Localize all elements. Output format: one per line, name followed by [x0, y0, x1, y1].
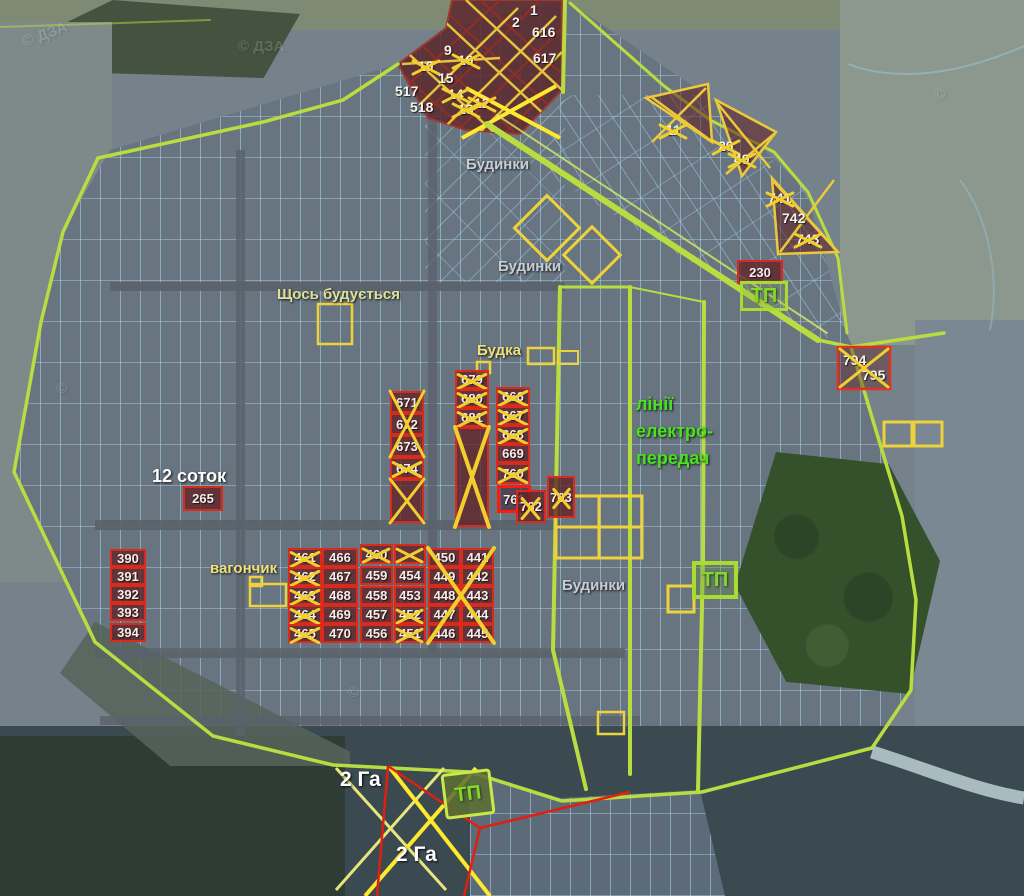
map-label: передач: [636, 448, 709, 469]
plot-marker: 616: [532, 24, 555, 40]
plot-marker: 760: [496, 463, 530, 484]
plot-marker: [394, 544, 426, 564]
plot-marker: 443: [461, 586, 494, 605]
plot-marker: 391: [110, 567, 146, 585]
map-label: 2 Га: [396, 843, 437, 867]
plot-marker: 390: [110, 549, 146, 567]
plot-marker: 15: [438, 70, 454, 86]
watermark: ©: [934, 86, 945, 103]
plot-marker: 14: [448, 86, 464, 102]
plot-marker: 795: [862, 367, 885, 383]
plot-marker: 673: [390, 435, 424, 457]
plot-marker: 666: [496, 387, 530, 406]
plot-marker: 462: [288, 567, 322, 586]
plot-marker: 20: [718, 138, 734, 154]
plot-marker: 49: [734, 151, 750, 167]
plot-marker: 448: [428, 586, 461, 605]
plot-marker: 466: [322, 548, 358, 567]
plot-marker: 467: [322, 567, 358, 586]
plot-marker: 456: [360, 624, 393, 643]
plot-marker: 442: [461, 567, 494, 586]
plot-marker: 794: [843, 352, 866, 368]
plot-marker: 449: [428, 567, 461, 586]
plot-marker: 450: [428, 548, 461, 567]
plot-marker: 681: [455, 408, 489, 427]
plot-marker: 11: [666, 122, 681, 138]
plot-marker: 452: [394, 605, 426, 624]
plot-marker: 1: [530, 2, 538, 18]
plot-marker: [390, 479, 424, 523]
plot-marker: 679: [455, 370, 489, 389]
tp-substation-box: ТП: [740, 281, 788, 311]
watermark: ©: [348, 684, 359, 701]
map-label: Будинки: [562, 577, 625, 594]
plot-marker: 461: [288, 548, 322, 567]
plot-marker: 763: [547, 476, 575, 518]
map-label: Будинки: [466, 156, 529, 173]
map-label: вагончик: [210, 560, 277, 577]
plot-marker: 468: [322, 586, 358, 605]
map-label: Щось будується: [277, 286, 400, 303]
map-label: 2 Га: [340, 768, 381, 792]
plot-marker: 441: [461, 548, 494, 567]
plot-marker: 445: [461, 624, 494, 643]
plot-marker: 394: [110, 623, 146, 642]
plot-marker: 464: [288, 605, 322, 624]
plot-marker: 517: [395, 83, 418, 99]
plot-marker: 451: [394, 624, 426, 643]
tp-substation-box: ТП: [440, 768, 495, 820]
watermark: ©: [56, 380, 67, 397]
satellite-map: БудинкиБудинкиБудинкиЩось будуєтьсяБудка…: [0, 0, 1024, 896]
map-label: Будинки: [498, 258, 561, 275]
watermark: © ДЗА: [20, 19, 69, 51]
plot-marker: 447: [428, 605, 461, 624]
tp-substation-box: ТП: [692, 561, 738, 599]
plot-marker: 680: [455, 389, 489, 408]
plot-marker: 668: [496, 425, 530, 444]
plot-marker: 667: [496, 406, 530, 425]
plot-marker: 463: [288, 586, 322, 605]
map-label: Будка: [477, 342, 521, 359]
plot-marker: 741: [768, 190, 791, 206]
plot-marker: 742: [782, 210, 805, 226]
plot-marker: 762: [516, 490, 546, 523]
plot-marker: 446: [428, 624, 461, 643]
map-label: лінії: [636, 394, 673, 415]
plot-marker: 470: [322, 624, 358, 643]
plot-marker: [455, 427, 489, 527]
plot-marker: 671: [390, 391, 424, 413]
plot-marker: 393: [110, 603, 146, 621]
map-label: 12 соток: [152, 466, 226, 487]
map-label: електро-: [636, 421, 713, 442]
plot-marker: 12: [474, 95, 490, 111]
plot-marker: 392: [110, 585, 146, 603]
plot-marker: 672: [390, 413, 424, 435]
plot-marker: 454: [394, 566, 426, 585]
plot-marker: 10: [418, 58, 434, 74]
plot-marker: 669: [496, 444, 530, 463]
plot-marker: 617: [533, 50, 556, 66]
watermark: © ДЗА: [238, 38, 284, 55]
plot-marker: 10: [458, 52, 474, 68]
plot-marker: 465: [288, 624, 322, 643]
plot-marker: 460: [360, 544, 393, 564]
plot-marker: 469: [322, 605, 358, 624]
plot-marker: 265: [183, 486, 223, 511]
plot-marker: 453: [394, 586, 426, 605]
plot-marker: 458: [360, 586, 393, 605]
plot-marker: 743: [796, 231, 819, 247]
annotation-layer: БудинкиБудинкиБудинкиЩось будуєтьсяБудка…: [0, 0, 1024, 896]
plot-marker: 674: [390, 457, 424, 479]
plot-marker: 518: [410, 99, 433, 115]
plot-marker: 457: [360, 605, 393, 624]
plot-marker: 459: [360, 566, 393, 585]
plot-marker: 444: [461, 605, 494, 624]
plot-marker: 2: [512, 14, 520, 30]
